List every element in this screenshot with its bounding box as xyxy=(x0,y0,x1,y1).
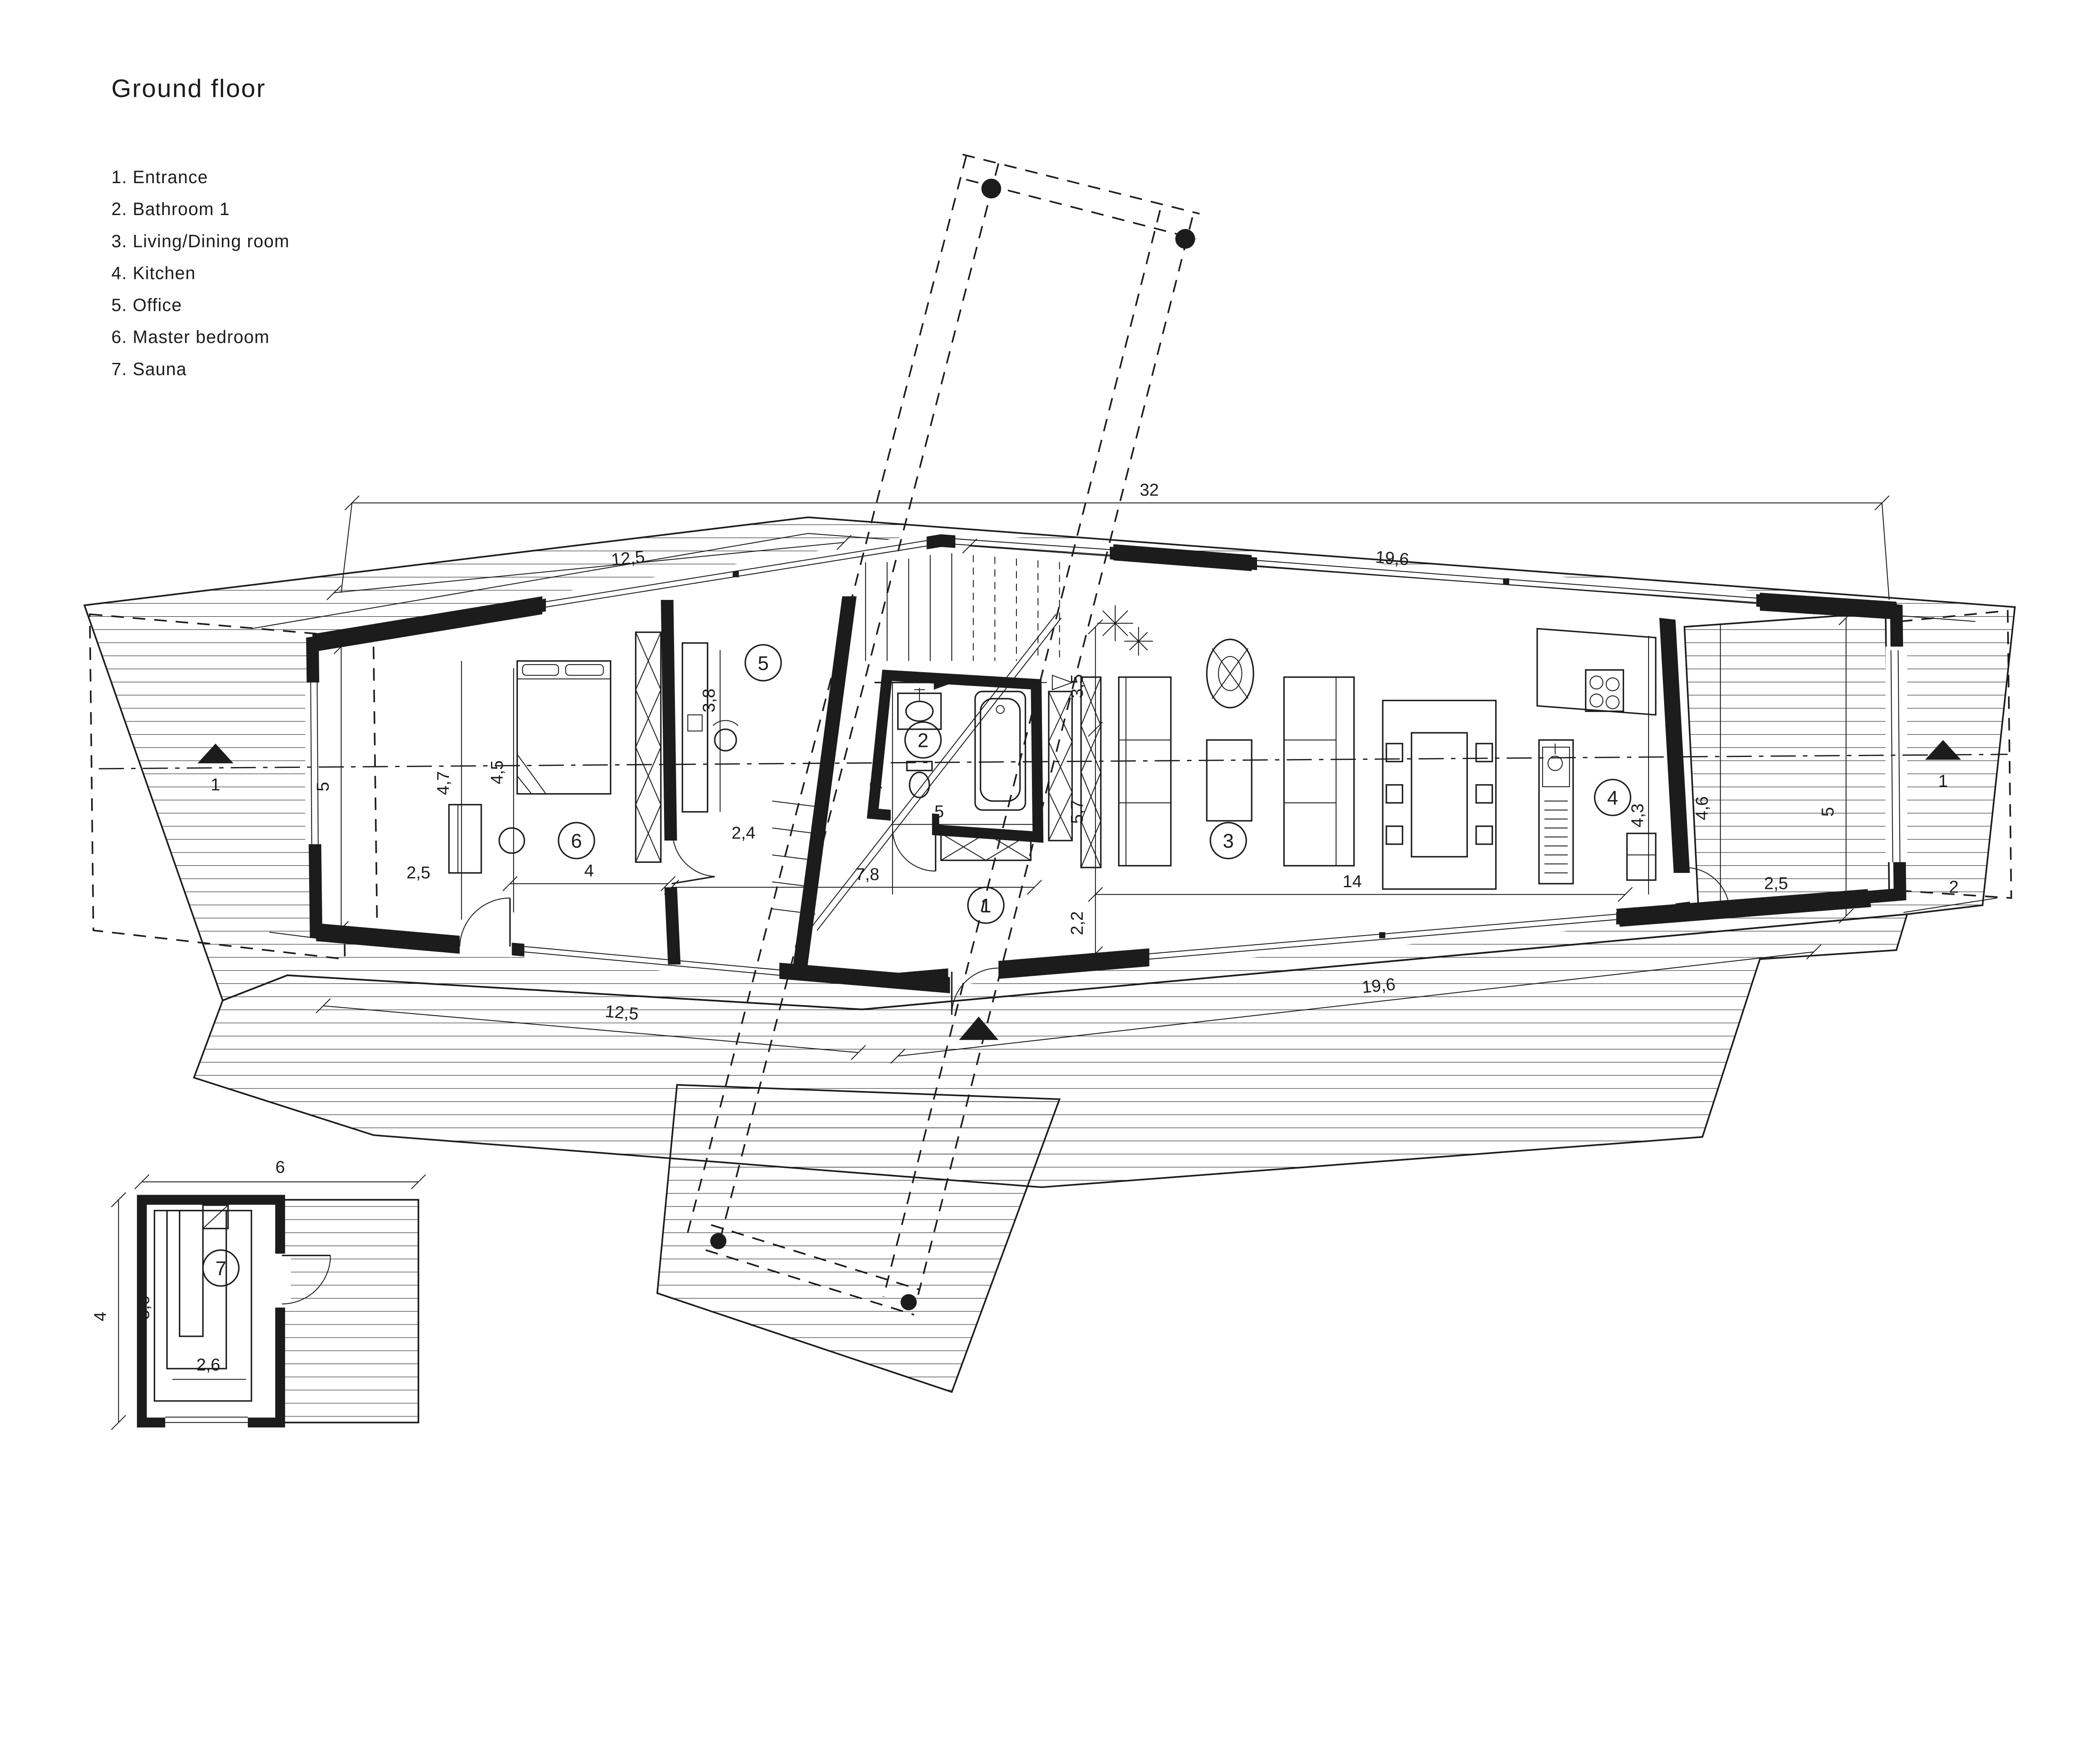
dim-living-top: 3,5 xyxy=(1067,674,1087,698)
svg-text:4: 4 xyxy=(1607,787,1618,809)
dim-hall-width: 7,8 xyxy=(856,865,879,884)
dim-bottom-right: 19,6 xyxy=(1361,975,1396,997)
legend-item-sauna: 7. Sauna xyxy=(111,359,187,379)
dim-top-right: 19,6 xyxy=(1375,547,1410,569)
page-title: Ground floor xyxy=(111,74,266,102)
floor-plan-sheet: Ground floor 1. Entrance 2. Bathroom 1 3… xyxy=(0,0,2100,1485)
sauna-deck xyxy=(280,1200,418,1422)
legend-item-entrance: 1. Entrance xyxy=(111,167,208,187)
dim-living-mid: 5,7 xyxy=(1067,800,1087,824)
dim-right-height: 5 xyxy=(1818,807,1837,817)
legend-item-bathroom: 2. Bathroom 1 xyxy=(111,199,230,219)
svg-text:5: 5 xyxy=(758,652,769,674)
dim-terrace-width: 4,6 xyxy=(1692,796,1711,820)
dim-left-offset: 2 xyxy=(310,908,319,927)
sauna-walls xyxy=(142,1200,280,1422)
dim-sauna-depth: 4 xyxy=(90,1312,110,1322)
dim-top-overall: 32 xyxy=(1140,480,1159,499)
dim-right-offset: 2 xyxy=(1949,877,1959,896)
section-label-right: 1 xyxy=(1938,771,1948,791)
legend-item-kitchen: 4. Kitchen xyxy=(111,263,196,283)
dim-left-height: 5 xyxy=(313,782,332,791)
dim-bedroom-width: 4 xyxy=(584,861,594,880)
dim-office-depth: 3,8 xyxy=(699,688,719,712)
dim-bath-width: 5 xyxy=(934,801,944,821)
dim-bedroom-depth: 4,5 xyxy=(487,760,507,784)
dim-sauna-bench-length: 3,6 xyxy=(134,1296,153,1319)
dim-sauna-bench-width: 2,6 xyxy=(196,1355,220,1374)
covered-terrace xyxy=(1685,612,1889,916)
dim-kitchen-depth: 4,3 xyxy=(1627,804,1647,828)
dim-sauna-width: 6 xyxy=(276,1157,285,1177)
dim-hall-length: 7 xyxy=(866,782,885,791)
legend-item-living: 3. Living/Dining room xyxy=(111,231,289,251)
svg-text:2: 2 xyxy=(918,729,929,752)
column-dot-icon xyxy=(982,179,1001,198)
dim-bedroom-door: 2,5 xyxy=(407,863,430,882)
legend-item-bedroom: 6. Master bedroom xyxy=(111,327,270,347)
dim-bottom-left: 12,5 xyxy=(604,1001,640,1024)
sauna-detail: 7 6 4 3,6 2,6 xyxy=(90,1157,425,1433)
dim-office-door: 2,4 xyxy=(732,823,756,843)
dim-terrace-door: 2,5 xyxy=(1764,873,1788,893)
column-dot-icon xyxy=(710,1233,726,1249)
svg-text:6: 6 xyxy=(571,830,582,852)
dim-living-length: 14 xyxy=(1343,872,1362,891)
svg-text:7: 7 xyxy=(215,1257,226,1280)
dim-living-bottom: 2,2 xyxy=(1067,911,1087,935)
svg-text:3: 3 xyxy=(1223,830,1234,852)
legend-item-office: 5. Office xyxy=(111,295,182,315)
column-dot-icon xyxy=(1175,229,1195,249)
dim-bedroom-window: 4,7 xyxy=(433,771,453,795)
dim-top-left: 12,5 xyxy=(610,547,646,569)
column-dot-icon xyxy=(900,1294,916,1310)
section-label-left: 1 xyxy=(211,775,220,794)
svg-text:1: 1 xyxy=(980,894,991,917)
legend: 1. Entrance 2. Bathroom 1 3. Living/Dini… xyxy=(111,167,289,379)
